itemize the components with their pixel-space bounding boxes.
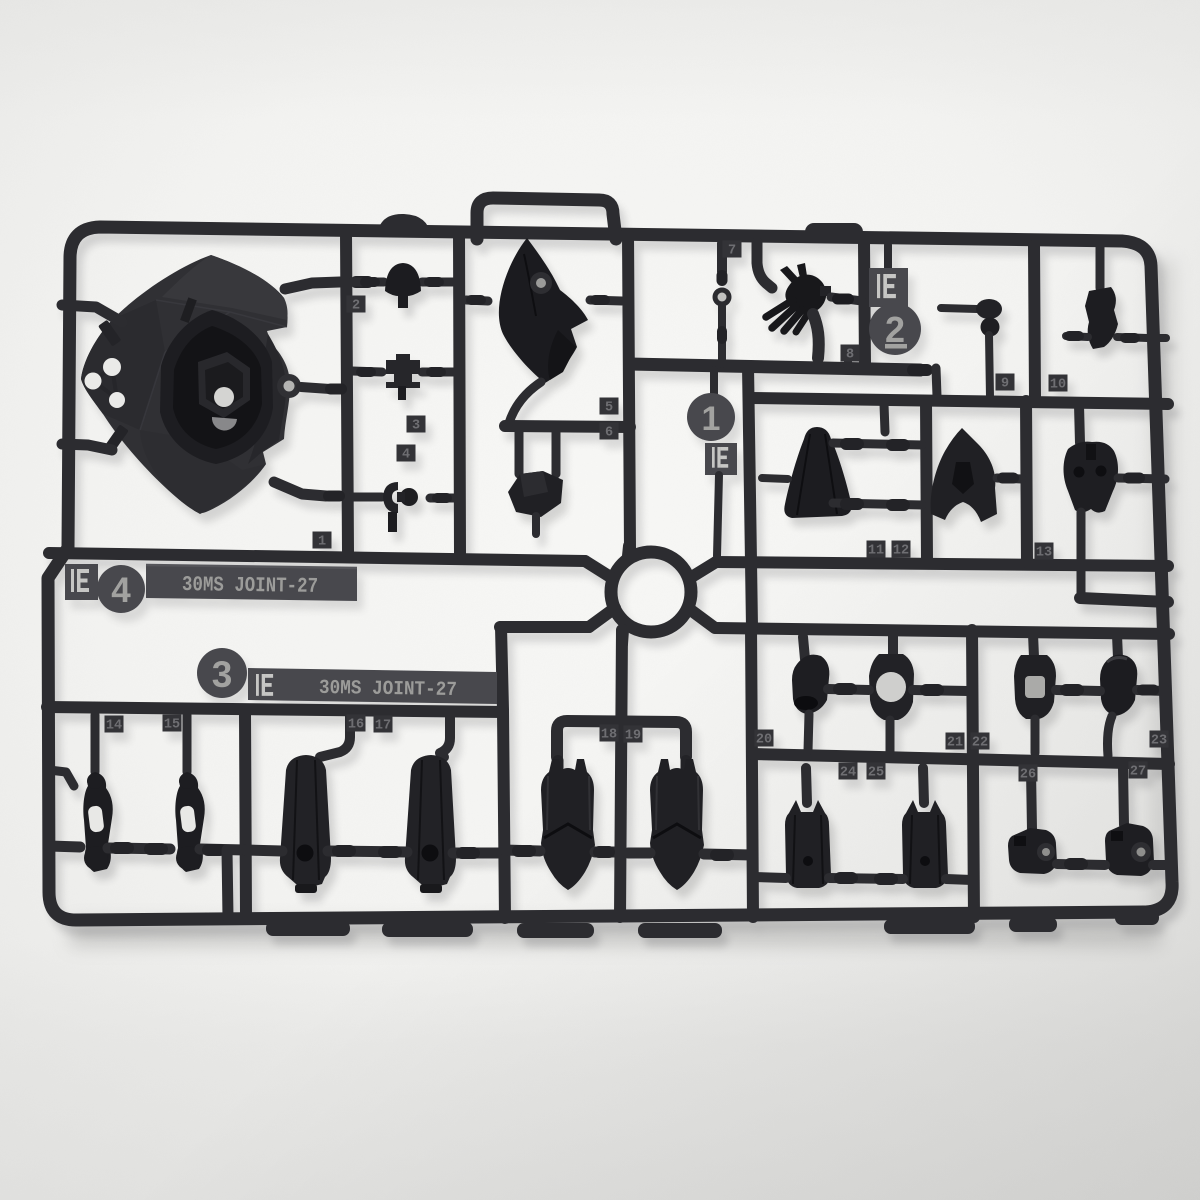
svg-text:12: 12 (893, 544, 909, 559)
svg-text:21: 21 (947, 736, 963, 751)
svg-text:11: 11 (868, 544, 884, 559)
svg-text:7: 7 (728, 244, 736, 259)
svg-text:30MS JOINT-27: 30MS JOINT-27 (319, 677, 457, 702)
svg-text:1: 1 (318, 535, 326, 550)
svg-text:16: 16 (348, 718, 364, 733)
svg-text:3: 3 (212, 654, 233, 695)
svg-text:5: 5 (605, 401, 613, 416)
svg-text:24: 24 (840, 766, 856, 781)
svg-text:20: 20 (756, 733, 772, 748)
svg-text:14: 14 (106, 719, 122, 734)
svg-text:19: 19 (625, 729, 641, 744)
svg-text:23: 23 (1151, 734, 1167, 749)
svg-text:8: 8 (846, 348, 854, 363)
svg-text:26: 26 (1020, 768, 1036, 783)
svg-text:3: 3 (412, 419, 420, 434)
svg-text:2: 2 (352, 299, 360, 314)
svg-text:22: 22 (972, 736, 988, 751)
svg-text:9: 9 (1001, 377, 1009, 392)
svg-text:18: 18 (601, 728, 617, 743)
svg-text:13: 13 (1036, 546, 1052, 561)
svg-text:6: 6 (605, 426, 613, 441)
svg-text:30MS JOINT-27: 30MS JOINT-27 (182, 574, 318, 599)
svg-text:10: 10 (1050, 378, 1066, 393)
svg-text:27: 27 (1130, 765, 1146, 780)
svg-text:1: 1 (702, 400, 721, 438)
svg-text:17: 17 (375, 719, 391, 734)
svg-text:2: 2 (885, 309, 905, 350)
svg-text:25: 25 (868, 766, 884, 781)
svg-text:4: 4 (111, 571, 131, 610)
svg-text:4: 4 (402, 448, 410, 463)
svg-text:15: 15 (164, 718, 180, 733)
